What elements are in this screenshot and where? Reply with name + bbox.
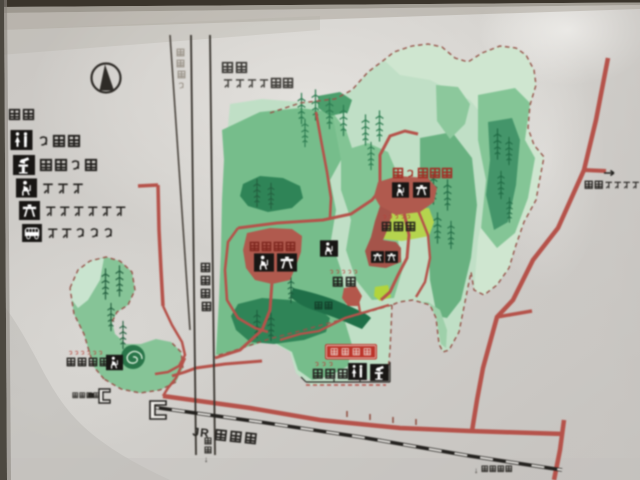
svg-text:↓: ↓ — [204, 455, 208, 464]
svg-text:↓: ↓ — [474, 466, 478, 475]
